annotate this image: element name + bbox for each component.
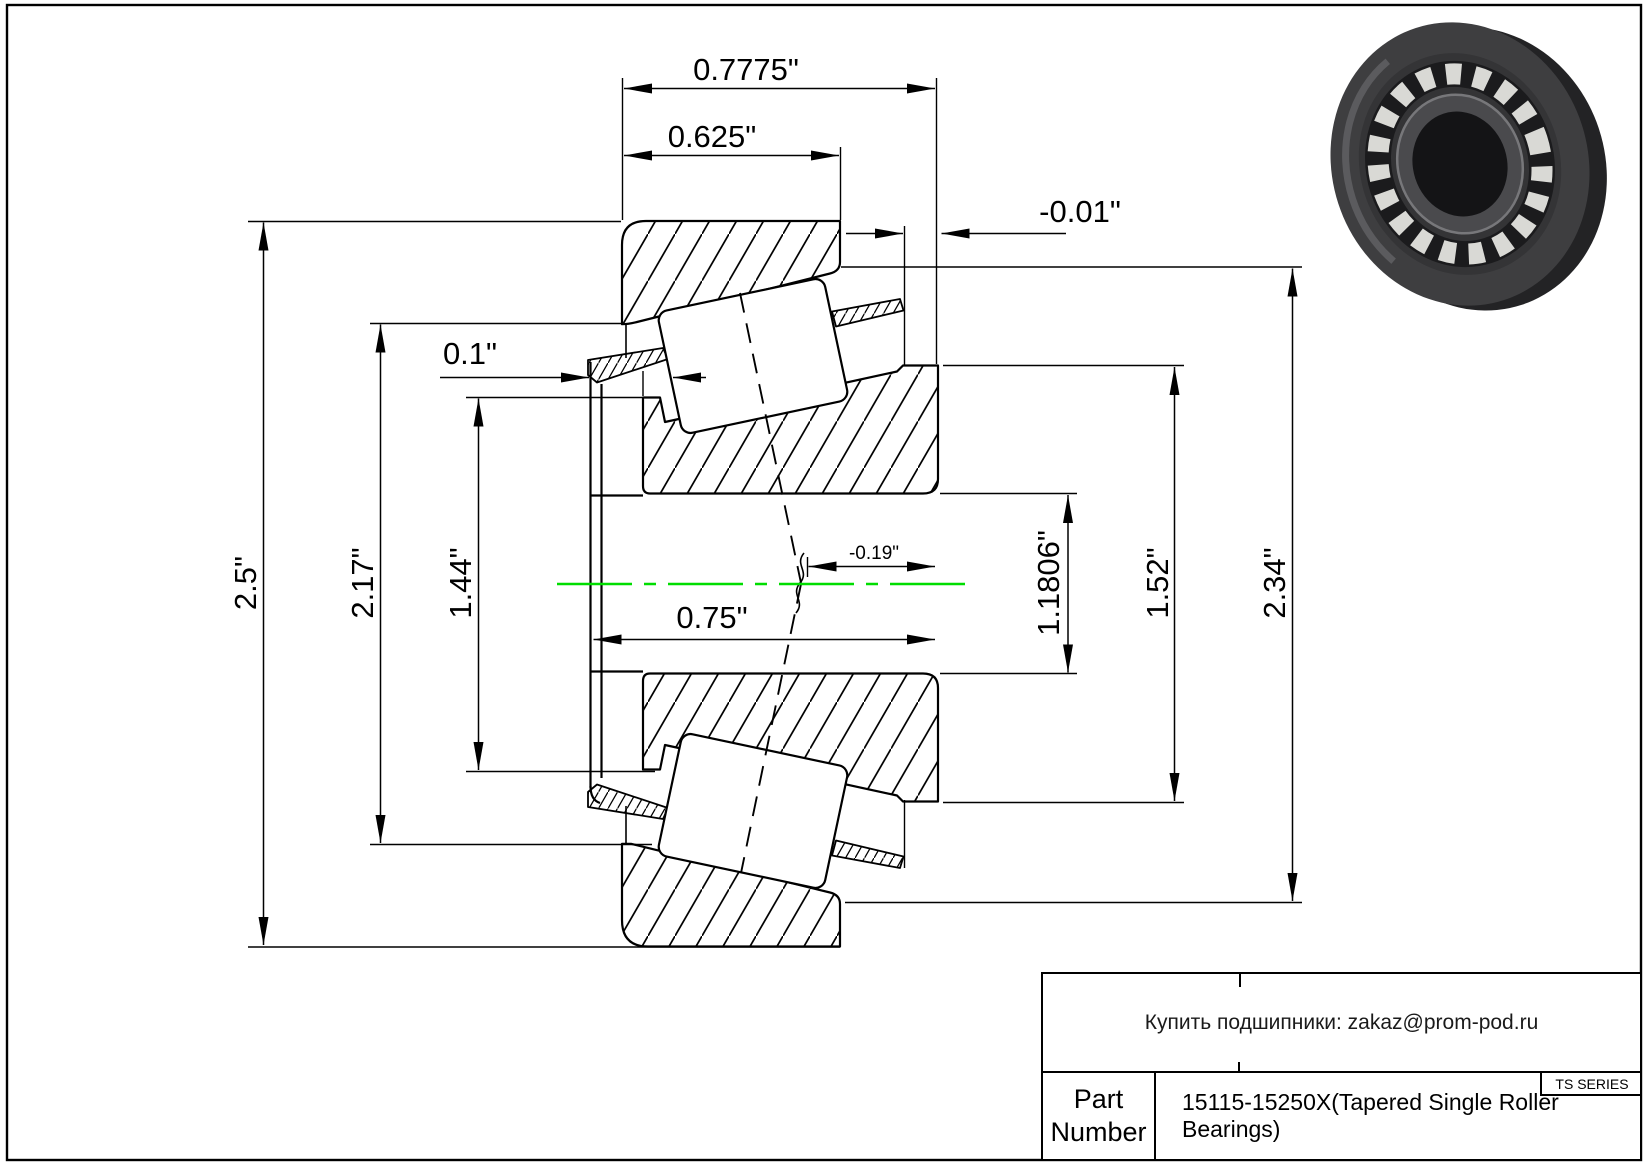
dim-bore: 1.1806"	[1031, 530, 1066, 636]
contact-row: Купить подшипники: zakaz@prom-pod.ru	[1043, 974, 1640, 1073]
dim-race-id: 2.34"	[1257, 547, 1292, 618]
dim-cone-front-od: 1.52"	[1140, 547, 1175, 618]
dim-cup-od: 2.5"	[228, 556, 263, 610]
dim-cup-width: 0.625"	[668, 119, 757, 154]
bearing-3d-render	[1294, 0, 1643, 349]
drawing-page: 0.7775" 0.625" -0.01" 0.1" 0.75" -0.19" …	[0, 0, 1649, 1167]
dim-center-offset: -0.19"	[849, 543, 899, 564]
cage-upper-right	[832, 299, 904, 327]
cage-upper-left	[588, 348, 668, 383]
dim-stickout: -0.01"	[1039, 194, 1121, 229]
dim-overall-width: 0.7775"	[693, 52, 799, 87]
title-block: Купить подшипники: zakaz@prom-pod.ru Par…	[1041, 972, 1642, 1161]
dim-race-od: 2.17"	[345, 547, 380, 618]
contact-text: Купить подшипники: zakaz@prom-pod.ru	[1145, 1011, 1539, 1035]
dim-seal-od: 1.44"	[443, 547, 478, 618]
part-number-label: Part Number	[1043, 1073, 1156, 1159]
seal-flinger-section	[591, 362, 644, 803]
cage-lower-left	[588, 785, 668, 820]
series-badge: TS SERIES	[1540, 1071, 1642, 1096]
dim-cone-width: 0.75"	[676, 600, 747, 635]
cage-lower-right	[832, 841, 904, 869]
part-number-row: Part Number 15115-15250X(Tapered Single …	[1043, 1073, 1640, 1159]
dim-front-gap: 0.1"	[443, 336, 497, 371]
